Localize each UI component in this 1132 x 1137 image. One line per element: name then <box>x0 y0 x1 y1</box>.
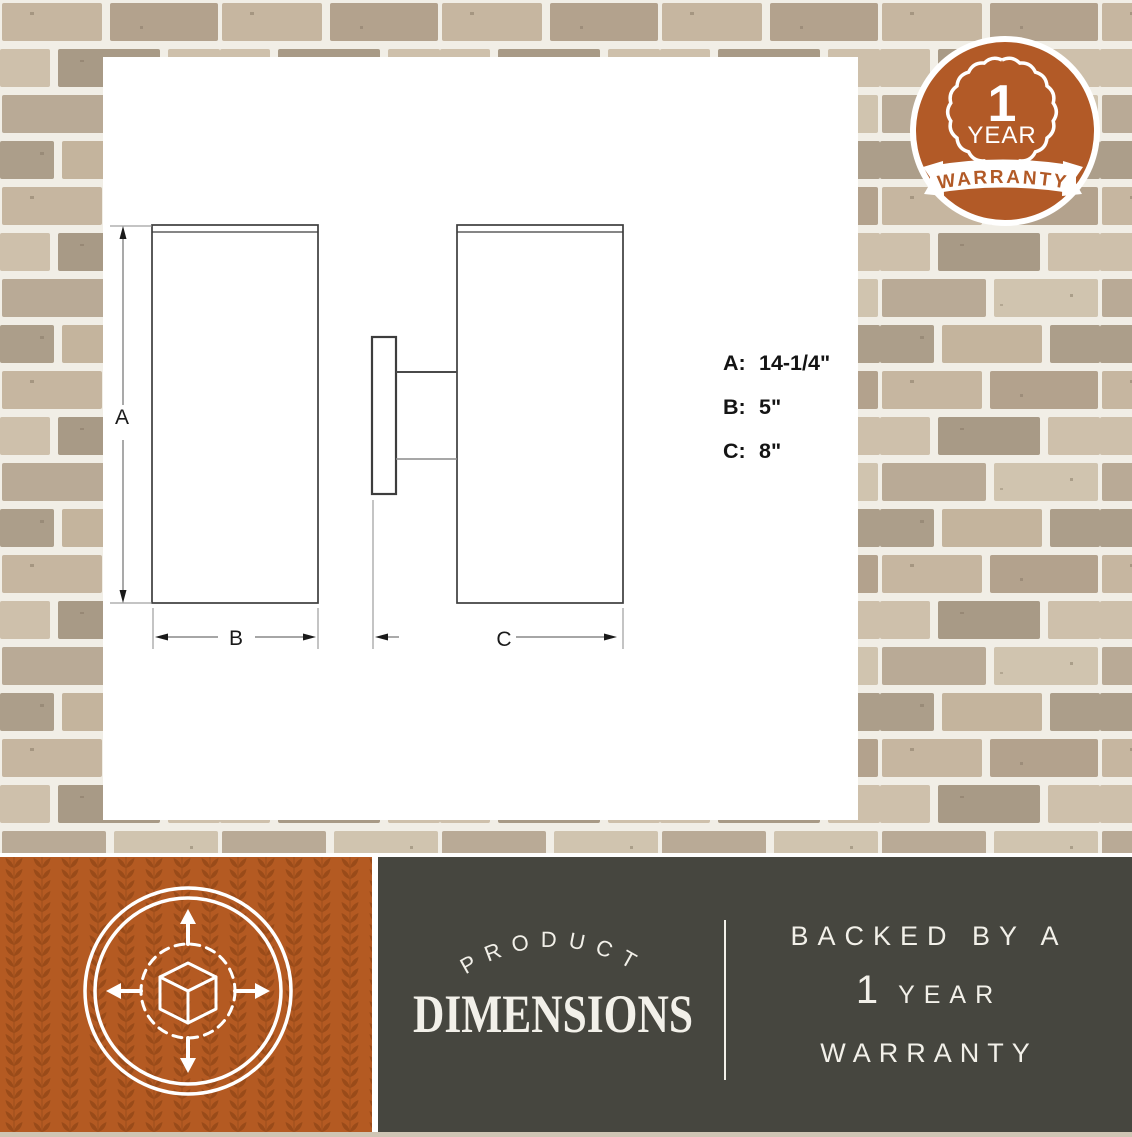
dim-label-b: B <box>229 627 243 650</box>
spec-row-c: C: 8" <box>723 429 830 473</box>
badge-year-unit: YEAR <box>967 122 1036 149</box>
banner-text-panel: PRODUCT DIMENSIONS BACKED BY A 1 YEAR WA… <box>378 857 1132 1132</box>
spec-label: B: <box>723 385 753 429</box>
warranty-text: WARRANTY <box>726 1038 1132 1069</box>
wall-plate <box>372 337 457 494</box>
dimensions-cube-icon <box>85 888 291 1094</box>
front-view <box>152 225 318 603</box>
spec-label: A: <box>723 341 753 385</box>
spec-value: 5" <box>759 395 781 419</box>
product-dimensions-infographic: { "warranty_badge": { "value": "1", "uni… <box>0 0 1132 1132</box>
product-panel: A B C A: 14-1/4" B: 5" C: 8" <box>103 57 858 820</box>
arc-title: PRODUCT <box>456 927 650 979</box>
spec-label: C: <box>723 429 753 473</box>
spec-value: 8" <box>759 439 781 463</box>
product-dimensions-title: PRODUCT DIMENSIONS <box>378 857 724 1132</box>
year-unit: YEAR <box>898 981 1002 1010</box>
spec-row-a: A: 14-1/4" <box>723 341 830 385</box>
bottom-banner: PRODUCT DIMENSIONS BACKED BY A 1 YEAR WA… <box>0 853 1132 1132</box>
spec-list: A: 14-1/4" B: 5" C: 8" <box>723 341 830 473</box>
side-view <box>457 225 623 603</box>
spec-row-b: B: 5" <box>723 385 830 429</box>
main-title: DIMENSIONS <box>413 984 693 1044</box>
dimensions-icon-canvas <box>0 857 372 1132</box>
dim-label-c: C <box>496 628 511 651</box>
warranty-badge: 1 YEAR WARRANTY <box>905 33 1105 233</box>
pattern-panel <box>0 857 372 1132</box>
year-text: 1 YEAR <box>726 968 1132 1013</box>
backed-by-text: BACKED BY A <box>726 921 1132 952</box>
dim-line-c <box>373 500 623 649</box>
svg-text:PRODUCT: PRODUCT <box>456 927 650 979</box>
dim-label-a: A <box>115 406 129 429</box>
year-value: 1 <box>856 968 878 1013</box>
spec-value: 14-1/4" <box>759 351 830 375</box>
